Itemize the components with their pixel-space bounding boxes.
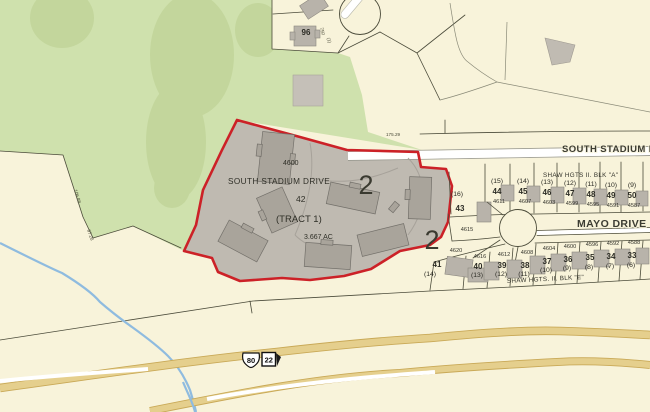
svg-text:36: 36 [564,255,573,264]
svg-text:(11): (11) [585,181,597,188]
svg-text:(9): (9) [563,265,571,272]
svg-text:45: 45 [519,187,528,196]
lot-43: 43 [456,204,465,213]
svg-text:40: 40 [474,262,483,271]
svg-text:4595: 4595 [587,202,599,208]
north-parcel-lot: 96 [302,28,311,37]
mayo-street-label: MAYO DRIVE [577,218,647,230]
zone-label-right: 2 [424,225,439,255]
south-stadium-street-label: SOUTH STADIUM D [562,144,650,155]
svg-text:33: 33 [628,251,637,260]
svg-text:38: 38 [521,261,530,270]
tract-area: 3.667 AC [304,234,333,241]
green-area-building [293,75,323,106]
svg-text:4587: 4587 [628,203,640,209]
svg-text:4604: 4604 [543,246,555,252]
svg-text:4596: 4596 [586,242,598,248]
svg-text:50: 50 [628,191,637,200]
svg-text:49: 49 [607,191,616,200]
tract-address: 4600 [283,160,299,167]
tract-name: (TRACT 1) [276,214,322,225]
svg-text:4592: 4592 [607,241,619,247]
svg-text:35: 35 [586,253,595,262]
svg-text:46: 46 [543,188,552,197]
svg-text:(10): (10) [605,182,617,189]
svg-text:4608: 4608 [521,250,533,256]
parcel-map-canvas[interactable]: 80 22 96 750 (1) [0,0,650,412]
block-a-label: SHAW HGTS II. BLK "A" [543,172,618,179]
svg-text:4607: 4607 [519,199,531,205]
svg-text:(7): (7) [606,263,614,270]
route-number-80: 80 [247,356,255,365]
svg-text:(11): (11) [518,271,530,278]
tract-lot: 42 [296,194,306,204]
svg-text:37: 37 [543,257,552,266]
svg-text:(12): (12) [495,271,507,278]
svg-text:34: 34 [607,252,616,261]
svg-text:4588: 4588 [628,240,640,246]
addr-4620: 4620 [450,248,462,254]
svg-text:(10): (10) [540,267,552,274]
svg-text:4611: 4611 [493,199,505,205]
svg-text:(8): (8) [585,264,593,271]
svg-text:(13): (13) [541,179,553,186]
svg-text:4616: 4616 [474,254,486,260]
lot-41: 41 [433,260,442,269]
svg-text:47: 47 [566,189,575,198]
svg-text:48: 48 [587,190,596,199]
route-number-22: 22 [265,356,273,365]
svg-text:44: 44 [493,187,502,196]
svg-text:(12): (12) [564,180,576,187]
svg-text:(6): (6) [627,262,635,269]
svg-text:4599: 4599 [566,201,578,207]
svg-text:(14): (14) [517,178,529,185]
svg-text:4612: 4612 [498,252,510,258]
svg-text:39: 39 [498,261,507,270]
svg-text:(13): (13) [471,272,483,279]
svg-text:4603: 4603 [543,200,555,206]
zone-label-left: 2 [358,170,373,200]
mayo-cul-de-sac [500,210,537,247]
svg-text:4591: 4591 [607,203,619,209]
tract-street-label: SOUTH STADIUM DRIVE [228,177,330,186]
dim-175: 175.29 [386,132,400,137]
map-svg: 80 22 96 750 (1) [0,0,650,412]
svg-text:4600: 4600 [564,244,576,250]
addr-4615: 4615 [461,227,473,233]
svg-text:(9): (9) [628,182,636,189]
lot-16-paren: (16) [451,191,463,198]
lot-41-paren: (14) [424,271,436,278]
svg-text:(15): (15) [491,178,503,185]
